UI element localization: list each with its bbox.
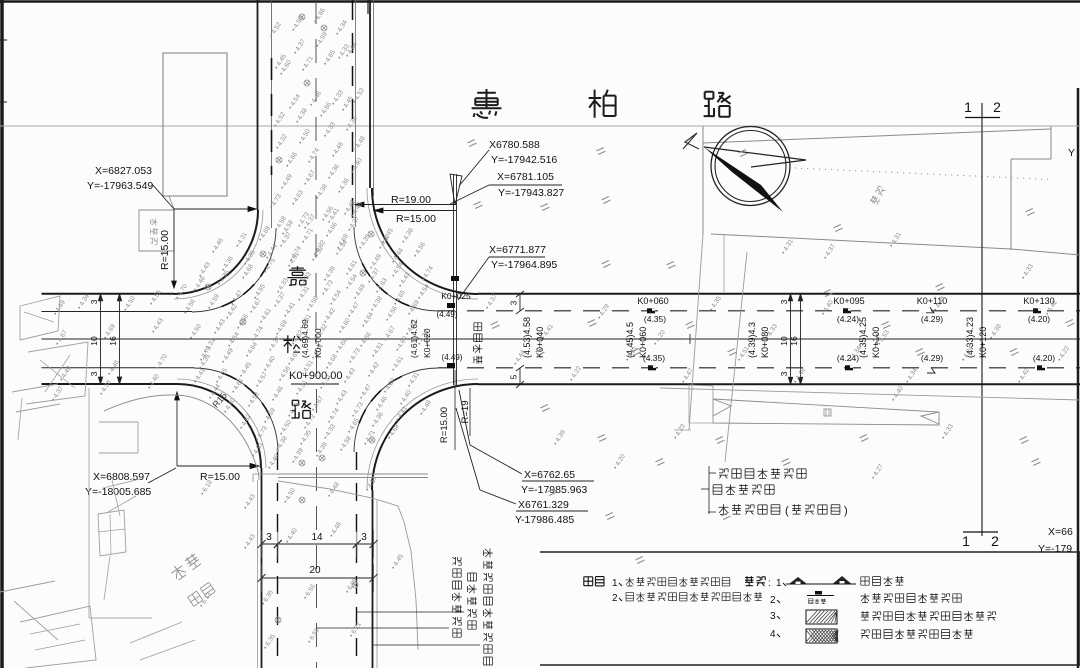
svg-text:(4.20): (4.20)	[1028, 314, 1050, 324]
svg-text:K0+900.00: K0+900.00	[289, 370, 343, 382]
svg-text:(4.35): (4.35)	[644, 314, 666, 324]
svg-text:K0+060: K0+060	[638, 327, 648, 358]
svg-text:2: 2	[993, 99, 1001, 115]
svg-text:(: (	[785, 505, 789, 517]
svg-text:10: 10	[779, 336, 789, 346]
svg-text:X=6808.597: X=6808.597	[93, 471, 150, 483]
svg-text:Y=-179: Y=-179	[1038, 543, 1072, 555]
svg-text:K0+060: K0+060	[637, 296, 668, 306]
svg-text:3: 3	[510, 300, 519, 305]
svg-text:(4.29): (4.29)	[921, 353, 943, 363]
svg-text:3: 3	[89, 299, 99, 304]
svg-text:4: 4	[770, 629, 776, 640]
svg-text:3: 3	[89, 371, 99, 376]
svg-text:5: 5	[510, 374, 519, 379]
svg-text:Y=-17942.516: Y=-17942.516	[491, 154, 557, 166]
svg-text:X=66: X=66	[1048, 526, 1073, 538]
svg-text:20: 20	[309, 565, 321, 576]
svg-text:1: 1	[776, 578, 782, 589]
svg-text:R=15.00: R=15.00	[439, 407, 450, 443]
svg-text:(4.20): (4.20)	[1033, 353, 1055, 363]
svg-text:3: 3	[361, 532, 367, 543]
svg-text:X=6781.105: X=6781.105	[497, 171, 554, 183]
svg-text:X=6827.053: X=6827.053	[95, 165, 152, 177]
svg-text:Y: Y	[1068, 147, 1075, 159]
svg-text:K0+120: K0+120	[978, 327, 988, 358]
svg-text:3: 3	[266, 532, 272, 543]
svg-text:1: 1	[964, 99, 972, 115]
svg-text:X6780.588: X6780.588	[489, 139, 540, 151]
svg-text::: :	[768, 578, 771, 589]
svg-text:X=6771.877: X=6771.877	[489, 244, 546, 256]
svg-text:(4.29): (4.29)	[921, 314, 943, 324]
svg-text:2: 2	[770, 595, 776, 606]
svg-text:Y=-17943.827: Y=-17943.827	[498, 187, 564, 199]
svg-text:3: 3	[779, 371, 789, 376]
svg-text:2: 2	[612, 593, 618, 604]
svg-text:(4.49): (4.49)	[442, 353, 463, 362]
svg-text:Y=-17964.895: Y=-17964.895	[491, 259, 557, 271]
svg-text:R=15.00: R=15.00	[396, 213, 436, 225]
svg-text:Y=-17963.549: Y=-17963.549	[87, 180, 153, 192]
svg-text:(4.24): (4.24)	[837, 314, 859, 324]
svg-text:X6761.329: X6761.329	[518, 499, 569, 511]
svg-text:3: 3	[770, 611, 776, 622]
svg-text:10: 10	[89, 336, 99, 346]
svg-text:Y=-18005.685: Y=-18005.685	[85, 486, 151, 498]
svg-text:1: 1	[962, 533, 970, 549]
svg-text:2: 2	[991, 533, 999, 549]
svg-text:K0+025: K0+025	[441, 291, 471, 301]
svg-text:R=19: R=19	[460, 401, 471, 424]
svg-text:3: 3	[779, 299, 789, 304]
svg-text:14: 14	[311, 532, 323, 543]
svg-text:Y-17986.485: Y-17986.485	[515, 514, 574, 526]
svg-text:K0+095: K0+095	[833, 296, 864, 306]
svg-text:X=6762.65: X=6762.65	[524, 469, 575, 481]
svg-text:): )	[844, 505, 848, 517]
svg-text:1: 1	[612, 578, 618, 589]
svg-text:R=15.00: R=15.00	[159, 230, 171, 270]
svg-text:Y=-17985.963: Y=-17985.963	[521, 484, 587, 496]
svg-text:16: 16	[789, 336, 799, 346]
svg-text:K0+100: K0+100	[871, 327, 881, 358]
svg-text:(4.49): (4.49)	[437, 310, 458, 319]
